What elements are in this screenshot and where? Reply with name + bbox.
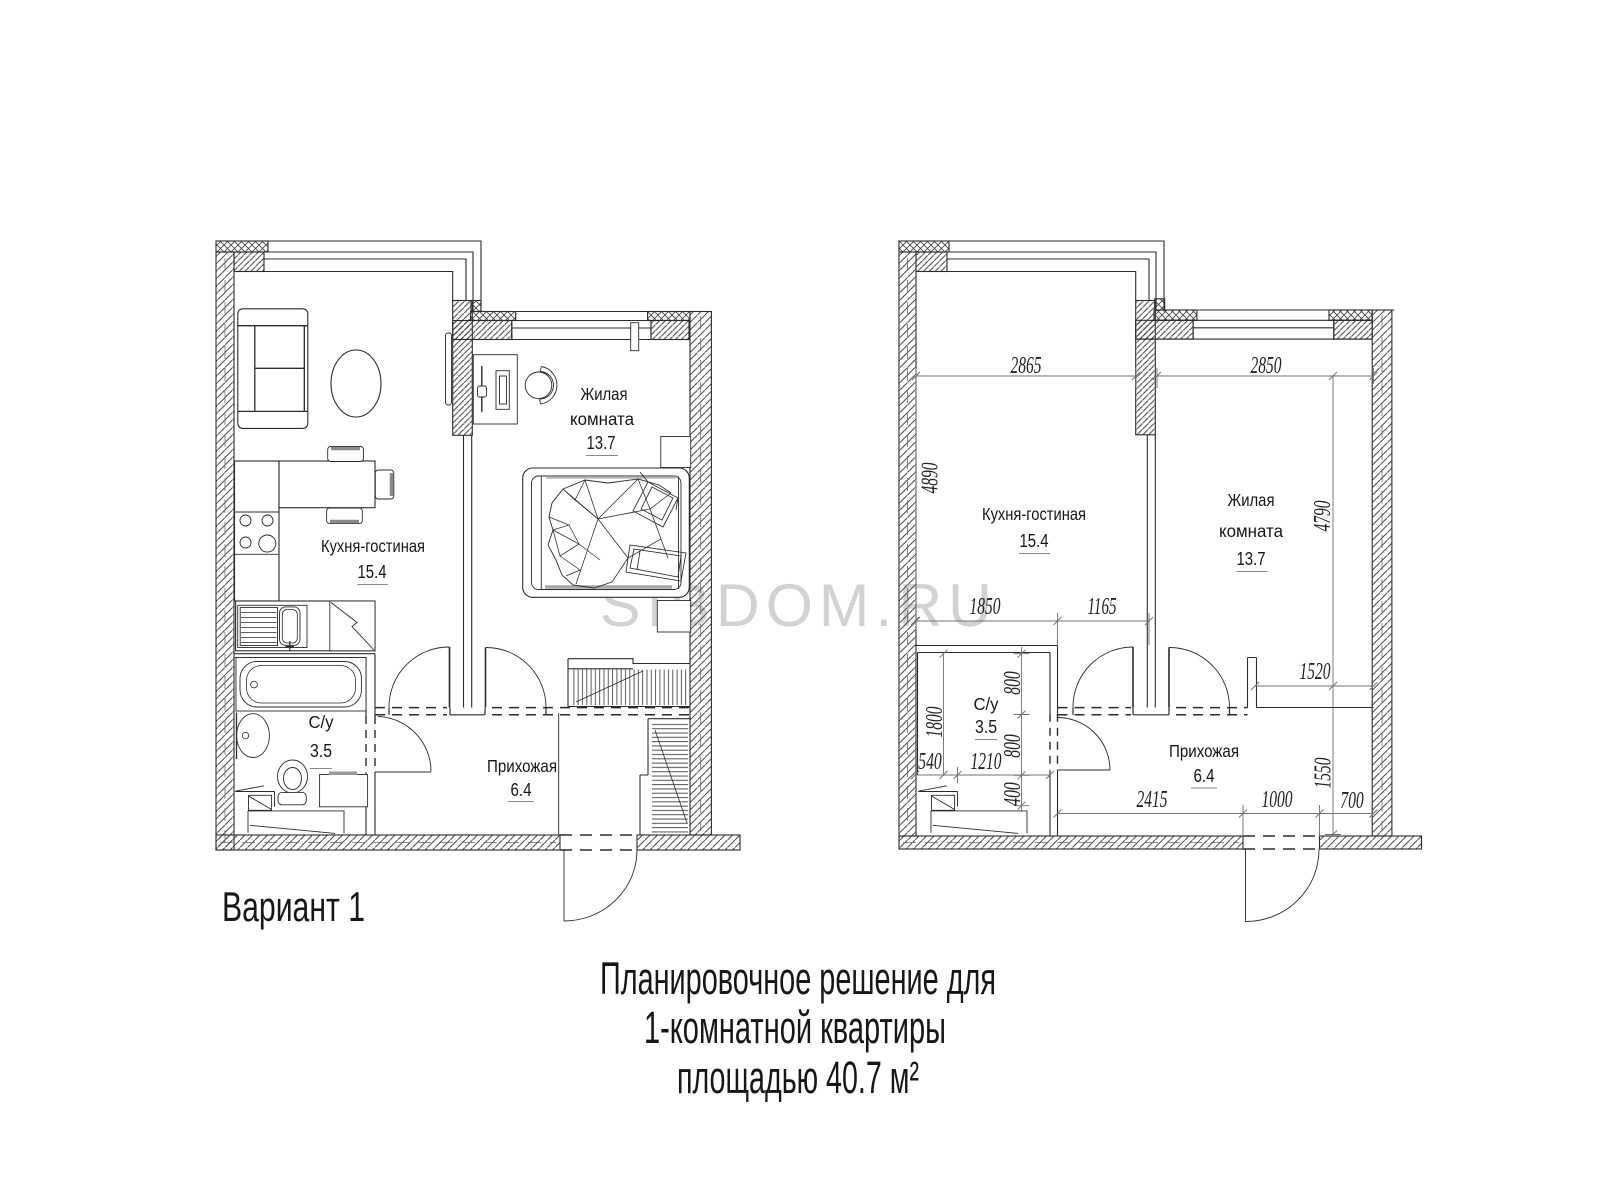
svg-text:1165: 1165 — [1088, 594, 1117, 620]
svg-text:700: 700 — [1340, 788, 1364, 814]
svg-text:2415: 2415 — [1137, 787, 1168, 813]
svg-text:3.5: 3.5 — [310, 740, 332, 761]
svg-text:15.4: 15.4 — [358, 561, 387, 582]
svg-text:С/у: С/у — [974, 694, 999, 714]
svg-text:2865: 2865 — [1011, 353, 1042, 379]
svg-text:площадью 40.7 м²: площадью 40.7 м² — [677, 1052, 919, 1103]
svg-text:Кухня-гостиная: Кухня-гостиная — [982, 504, 1086, 524]
svg-text:1850: 1850 — [970, 594, 1001, 620]
svg-text:Планировочное решение для: Планировочное решение для — [600, 953, 996, 1004]
svg-text:1550: 1550 — [1311, 758, 1337, 789]
svg-text:Жилая: Жилая — [1228, 490, 1275, 510]
svg-text:комната: комната — [570, 409, 634, 429]
svg-text:4790: 4790 — [1310, 501, 1336, 532]
svg-text:6.4: 6.4 — [511, 779, 532, 800]
svg-text:Вариант 1: Вариант 1 — [222, 883, 365, 930]
svg-text:3.5: 3.5 — [975, 716, 997, 737]
svg-text:800: 800 — [1000, 734, 1026, 758]
svg-text:Кухня-гостиная: Кухня-гостиная — [321, 536, 425, 556]
svg-text:4890: 4890 — [918, 463, 944, 494]
svg-text:800: 800 — [1000, 671, 1026, 695]
svg-text:13.7: 13.7 — [587, 432, 616, 453]
svg-text:6.4: 6.4 — [1194, 765, 1215, 786]
svg-text:1000: 1000 — [1262, 787, 1293, 813]
svg-text:Жилая: Жилая — [581, 384, 628, 404]
svg-text:С/у: С/у — [309, 712, 334, 732]
svg-text:Прихожая: Прихожая — [487, 756, 557, 776]
svg-text:2850: 2850 — [1251, 353, 1282, 379]
svg-text:400: 400 — [1000, 782, 1026, 806]
svg-text:540: 540 — [918, 749, 942, 775]
svg-text:комната: комната — [1219, 521, 1283, 541]
svg-text:1210: 1210 — [971, 749, 1002, 775]
svg-text:13.7: 13.7 — [1237, 548, 1266, 569]
svg-text:Прихожая: Прихожая — [1169, 741, 1239, 761]
svg-text:1800: 1800 — [922, 707, 948, 738]
svg-text:1-комнатной квартиры: 1-комнатной квартиры — [644, 1002, 946, 1053]
svg-text:1520: 1520 — [1300, 659, 1331, 685]
svg-text:15.4: 15.4 — [1020, 530, 1049, 551]
